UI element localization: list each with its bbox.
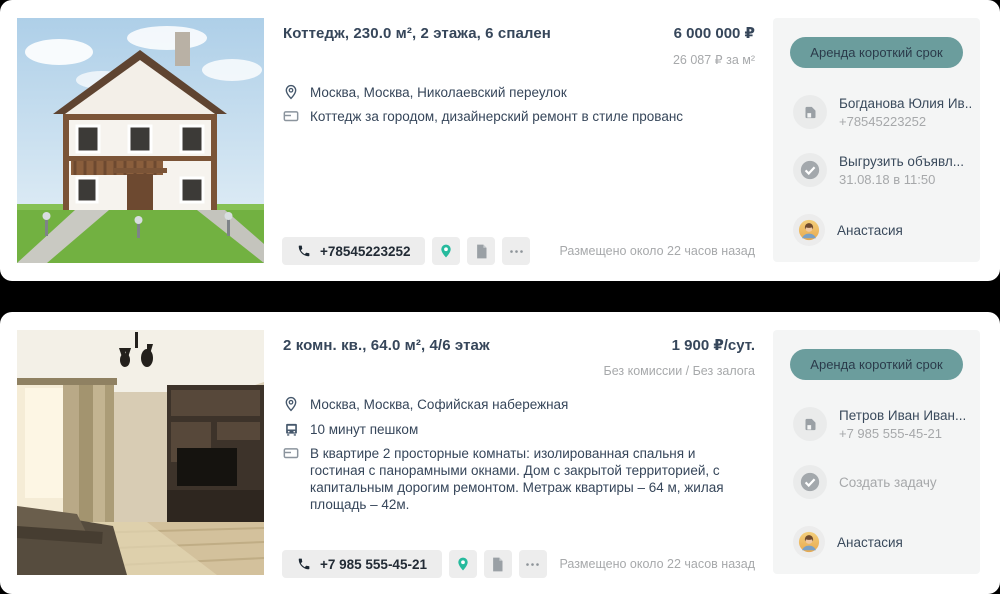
ellipsis-icon (525, 562, 540, 567)
listing-photo-cottage[interactable] (17, 18, 264, 263)
create-task-row[interactable]: Создать задачу (793, 465, 972, 499)
map-pin-icon (456, 556, 470, 572)
listing-actions: +7 985 555-45-21 Размеще (282, 550, 755, 578)
deal-stage-button[interactable]: Аренда короткий срок (790, 37, 963, 68)
listing-card-apartment: 2 комн. кв., 64.0 м², 4/6 этаж 1 900 ₽/с… (0, 312, 1000, 594)
listing-price: 1 900 ₽/сут. (672, 336, 755, 354)
more-options-button[interactable] (519, 550, 547, 578)
agent-name: Анастасия (837, 535, 903, 550)
location-text: Москва, Москва, Николаевский переулок (310, 84, 567, 101)
task-check-icon (793, 153, 827, 187)
contact-row[interactable]: Петров Иван Иван... +7 985 555-45-21 (793, 407, 972, 441)
deal-stage-button[interactable]: Аренда короткий срок (790, 349, 963, 380)
agent-avatar (793, 526, 825, 558)
save-contact-icon (793, 407, 827, 441)
agent-name: Анастасия (837, 223, 903, 238)
phone-icon (297, 244, 311, 258)
agent-avatar (793, 214, 825, 246)
summary-row: В квартире 2 просторные комнаты: изолиро… (283, 445, 745, 513)
listing-content: 2 комн. кв., 64.0 м², 4/6 этаж 1 900 ₽/с… (283, 312, 755, 594)
commission-note: Без комиссии / Без залога (604, 364, 756, 378)
listings-page: Коттедж, 230.0 м², 2 этажа, 6 спален 6 0… (0, 0, 1000, 594)
document-button[interactable] (467, 237, 495, 265)
summary-text: Коттедж за городом, дизайнерский ремонт … (310, 108, 683, 125)
summary-row: Коттедж за городом, дизайнерский ремонт … (283, 108, 755, 125)
location-pin-icon (283, 396, 299, 412)
file-icon (475, 244, 488, 259)
phone-icon (297, 557, 311, 571)
task-label: Выгрузить объявл... (839, 154, 964, 169)
posted-timestamp: Размещено около 22 часов назад (559, 557, 755, 571)
listing-content: Коттедж, 230.0 м², 2 этажа, 6 спален 6 0… (283, 0, 755, 281)
save-contact-icon (793, 95, 827, 129)
call-phone-button[interactable]: +7 985 555-45-21 (282, 550, 442, 578)
task-row[interactable]: Выгрузить объявл... 31.08.18 в 11:50 (793, 153, 972, 187)
listing-title: 2 комн. кв., 64.0 м², 4/6 этаж (283, 337, 490, 354)
file-icon (491, 557, 504, 572)
listing-card-cottage: Коттедж, 230.0 м², 2 этажа, 6 спален 6 0… (0, 0, 1000, 281)
listing-price: 6 000 000 ₽ (674, 24, 755, 42)
description-card-icon (283, 108, 299, 124)
listing-header: Коттедж, 230.0 м², 2 этажа, 6 спален 6 0… (283, 24, 755, 42)
task-check-icon (793, 465, 827, 499)
description-card-icon (283, 445, 299, 461)
listing-header: 2 комн. кв., 64.0 м², 4/6 этаж 1 900 ₽/с… (283, 336, 755, 354)
price-per-meter: 26 087 ₽ за м² (673, 52, 755, 67)
apartment-photo-illustration (17, 330, 264, 575)
listing-actions: +78545223252 Размещено о (282, 237, 755, 265)
map-pin-icon (439, 243, 453, 259)
transport-row: 10 минут пешком (283, 421, 755, 438)
contact-phone: +7 985 555-45-21 (839, 426, 966, 441)
create-task-label: Создать задачу (839, 475, 937, 490)
more-options-button[interactable] (502, 237, 530, 265)
posted-timestamp: Размещено около 22 часов назад (559, 244, 755, 258)
location-pin-icon (283, 84, 299, 100)
contact-name: Петров Иван Иван... (839, 408, 966, 423)
deal-sidebar: Аренда короткий срок Петров Иван Иван...… (773, 330, 980, 574)
cottage-photo-illustration (17, 18, 264, 263)
document-button[interactable] (484, 550, 512, 578)
deal-sidebar: Аренда короткий срок Богданова Юлия Ив..… (773, 18, 980, 262)
transport-text: 10 минут пешком (310, 421, 418, 438)
location-row: Москва, Москва, Николаевский переулок (283, 84, 755, 101)
contact-name: Богданова Юлия Ив... (839, 96, 972, 111)
transit-icon (283, 421, 299, 437)
call-phone-button[interactable]: +78545223252 (282, 237, 425, 265)
agent-row[interactable]: Анастасия (793, 214, 972, 246)
location-text: Москва, Москва, Софийская набережная (310, 396, 568, 413)
location-row: Москва, Москва, Софийская набережная (283, 396, 755, 413)
task-date: 31.08.18 в 11:50 (839, 172, 964, 187)
phone-number-label: +7 985 555-45-21 (320, 557, 427, 572)
show-on-map-button[interactable] (449, 550, 477, 578)
contact-row[interactable]: Богданова Юлия Ив... +78545223252 (793, 95, 972, 129)
agent-row[interactable]: Анастасия (793, 526, 972, 558)
listing-photo-apartment[interactable] (17, 330, 264, 575)
listing-title: Коттедж, 230.0 м², 2 этажа, 6 спален (283, 25, 551, 42)
summary-text: В квартире 2 просторные комнаты: изолиро… (310, 445, 745, 513)
show-on-map-button[interactable] (432, 237, 460, 265)
ellipsis-icon (509, 249, 524, 254)
contact-phone: +78545223252 (839, 114, 972, 129)
phone-number-label: +78545223252 (320, 244, 410, 259)
